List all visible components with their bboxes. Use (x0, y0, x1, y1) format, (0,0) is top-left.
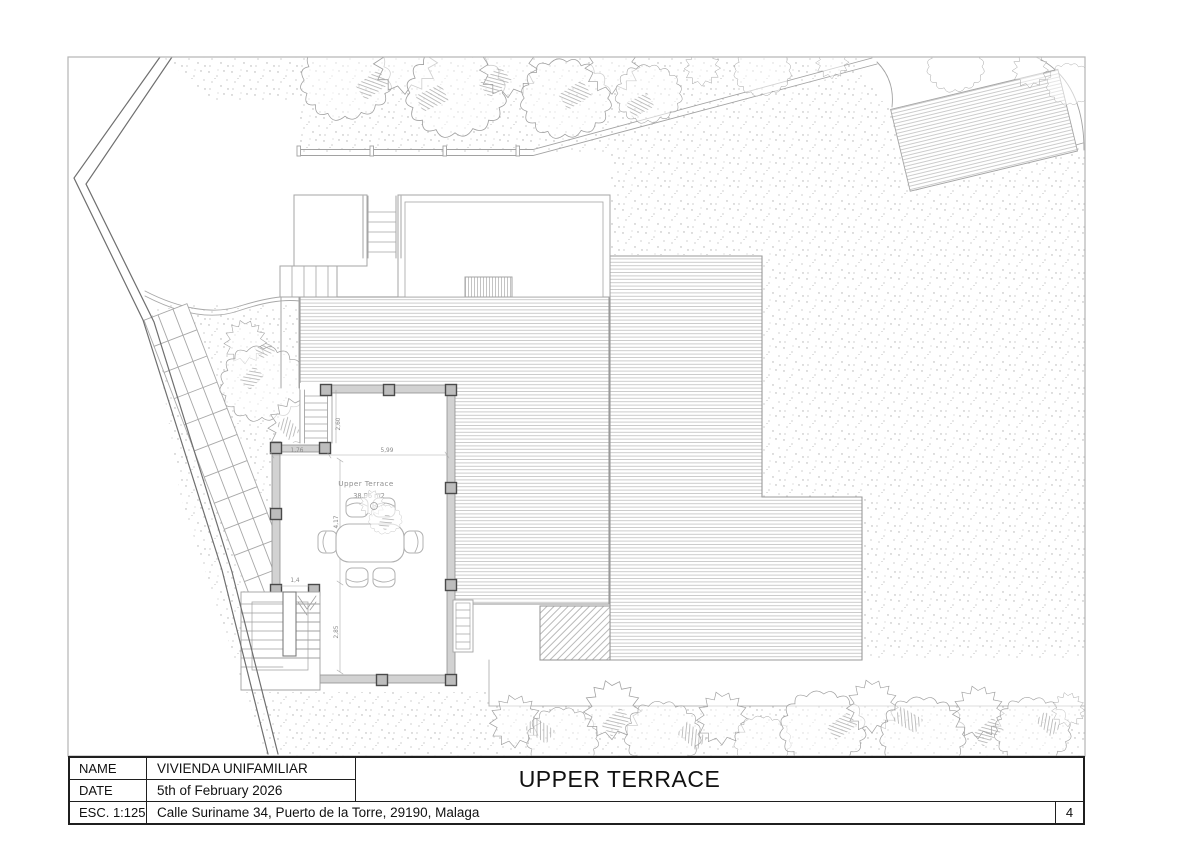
exterior-stair (241, 592, 320, 690)
dim-upper-stair: 2,60 (336, 417, 342, 430)
title-block: NAME VIVIENDA UNIFAMILIAR DATE 5th of Fe… (68, 756, 1085, 825)
name-label: NAME (70, 758, 147, 780)
roof-vent (465, 277, 512, 297)
address: Calle Suriname 34, Puerto de la Torre, 2… (147, 802, 1055, 823)
name-value: VIVIENDA UNIFAMILIAR (147, 758, 355, 780)
dim-top-width: 5,99 (381, 448, 394, 454)
dim-room-height: 4,17 (334, 515, 340, 528)
dim-step-width: 1,76 (291, 448, 304, 454)
date-value: 5th of February 2026 (147, 780, 355, 802)
scale-label: ESC. 1:125 (70, 802, 147, 823)
side-ladder (453, 600, 473, 652)
dim-stair-opening: 1,4 (290, 578, 300, 584)
dim-lower-height: 2,85 (334, 625, 340, 638)
sheet-title: UPPER TERRACE (355, 758, 1083, 802)
date-label: DATE (70, 780, 147, 802)
site-plan-drawing: 5,99 1,76 2,60 4,17 1,4 2,85 Upper Terra… (0, 0, 1200, 848)
roof-steps-block (280, 266, 337, 297)
page-number: 4 (1055, 802, 1083, 823)
room-label: Upper Terrace (338, 479, 394, 488)
hatched-canopy (540, 606, 610, 660)
drawing-sheet: 5,99 1,76 2,60 4,17 1,4 2,85 Upper Terra… (0, 0, 1200, 848)
